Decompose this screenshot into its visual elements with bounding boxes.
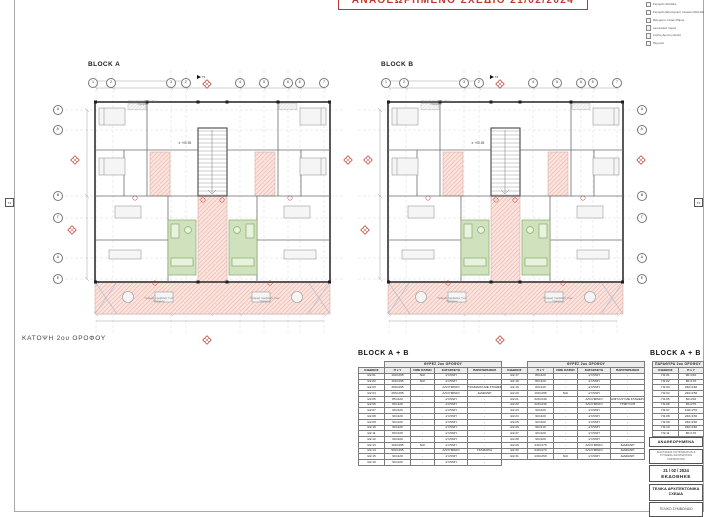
table-cell: 90×220 [385,460,411,466]
checkbox-icon[interactable] [646,41,651,46]
windows-table: ΠΑΡΑΘΥΡΑ 2ου ΟΡΟΦΟΥ ΚΩΔΙΚΟΣΠ x Y Π2.0190… [652,361,703,437]
checkbox-icon[interactable] [646,10,651,15]
projection-note: Γραμμή προβολής Των Ορόφων [124,100,162,107]
grid-bubble: 2' [181,78,191,88]
floor-plan-canvas [0,58,705,348]
table-cell: 80×170 [679,431,704,437]
grid-bubble: 2' [474,78,484,88]
table-row: Θ2.31130×250ΝΑΙΞΥΛΙΝΗΔΙΑΦΑΝΗ [502,454,645,460]
stamp-revision-note: ΔΙΑΣΤΑΣΕΙΣ ΚΟΥΦΩΜΑΤΩΝ & ΣΥΝΘΕΣΗ ΕΣΩΤΕΡΙΚ… [649,449,703,464]
drawing-sheet: { "sheet": { "revision_banner": "ΑΝΑΘΕΩΡ… [0,0,705,513]
projection-note: Γραμμή προβολής Των Ορόφων [539,297,577,304]
doors-table-left: ΘΥΡΕΣ 2ου ΟΡΟΦΟΥ ΚΩΔΙΚΟΣΠ x YFIRE RATEDΚ… [358,361,501,466]
grid-bubble: 2 [399,78,409,88]
legend-item[interactable]: Laminated παρκέ [646,25,704,30]
grid-bubble: 5 [259,78,269,88]
grid-bubble: 1 [381,78,391,88]
table-row: Θ2.1690×220-ΞΥΛΙΝΗ- [359,460,502,466]
legend-label: Ξύλινη Δρύινη (deck) [653,34,681,37]
projection-note: Γραμμή προβολής Των Ορόφων [246,297,284,304]
section-marker-t2: Τ2 [5,198,14,207]
grid-bubble: Β [53,191,63,201]
legend-item[interactable]: Ξύλινη Δρύινη (deck) [646,33,704,38]
projection-note: Γραμμή προβολής Των Ορόφων [140,297,178,304]
grid-bubble: 3 [166,78,176,88]
stamp-issued-label: ΕΚΔΟΘΗΚΕ [661,474,691,479]
grid-bubble: Α [53,105,63,115]
legend-label: Πέργολα [653,42,665,45]
grid-bubble: Β [637,191,647,201]
level-mark: ✛ +05.55 [178,141,191,145]
checkbox-icon[interactable] [646,25,651,30]
stamp-date: 21 / 02 / 2024 [663,468,689,473]
table-cell: 130×250 [528,454,554,460]
legend-label: Κεραμίδι 40x40εκ. [653,3,677,6]
grid-bubble: 4 [528,78,538,88]
grid-bubble: 5 [552,78,562,88]
doors-table-title: BLOCK A + B [358,350,409,357]
projection-note: Γραμμή προβολής Των Ορόφων [417,100,455,107]
section-flag-icon [490,75,494,79]
grid-bubble: 2 [106,78,116,88]
legend-label: Laminated παρκέ [653,27,676,30]
table-cell: ΞΥΛΙΝΗ [435,460,468,466]
table-cell: Θ2.16 [359,460,385,466]
checkbox-icon[interactable] [646,33,651,38]
stamp-issue: 21 / 02 / 2024 ΕΚΔΟΘΗΚΕ [649,465,703,482]
grid-bubble: Α' [53,125,63,135]
grid-bubble: Α [637,105,647,115]
table-cell: - [468,460,502,466]
table-cell: Π2.11 [653,431,679,437]
section-flag-icon [197,75,201,79]
legend-item[interactable]: Κεραμίδι 40x40εκ. [646,2,704,7]
legend-item[interactable]: Κεραμίδι (Εξωτερικό) πλακάκι 60x120εκ. [646,10,704,15]
revision-stamp: ΑΝΑΘΕΩΡΗΜΕΝΑ ΔΙΑΣΤΑΣΕΙΣ ΚΟΥΦΩΜΑΤΩΝ & ΣΥΝ… [649,437,703,517]
table-row: Π2.1180×170 [653,431,704,437]
grid-bubble: 7 [319,78,329,88]
checkbox-icon[interactable] [646,18,651,23]
grid-bubble: Δ [637,253,647,263]
legend-item[interactable]: Μάρμαρο πλακέ 25ψηλ. [646,18,704,23]
table-cell: Θ2.31 [502,454,528,460]
grid-bubble: 3 [459,78,469,88]
grid-bubble: 6' [295,78,305,88]
level-mark: ✛ +05.55 [471,141,484,145]
revision-banner: ΑΝΑΘΕΩΡΗΜΕΝΟ ΣΧΕΔΙΟ 21/02/2024 [338,0,588,10]
grid-bubble: 6' [588,78,598,88]
grid-bubble: Γ [637,213,647,223]
section-flag-t1: Τ1 [197,75,206,79]
legend-label: Κεραμίδι (Εξωτερικό) πλακάκι 60x120εκ. [653,11,704,14]
floor-plan-title: ΚΑΤΟΨΗ 2ου ΟΡΟΦΟΥ [22,335,106,342]
grid-bubble: 6 [283,78,293,88]
grid-bubble: 1 [88,78,98,88]
table-cell: ΞΥΛΙΝΗ [578,454,611,460]
doors-table-right: ΘΥΡΕΣ 2ου ΟΡΟΦΟΥ ΚΩΔΙΚΟΣΠ x YFIRE RATEDΚ… [501,361,644,460]
table-cell: ΝΑΙ [554,454,578,460]
grid-bubble: Ε [53,274,63,284]
section-flag-t1: Τ1 [490,75,499,79]
stamp-purpose: ΤΕΛΙΚΑ ΑΡΧΙΤΕΚΤΟΝΙΚΑ ΣΧΕΔΙΑ [649,484,703,501]
projection-note: Γραμμή προβολής Των Ορόφων [433,297,471,304]
grid-bubble: Γ [53,213,63,223]
grid-bubble: 7 [612,78,622,88]
legend-item[interactable]: Πέργολα [646,41,704,46]
grid-bubble: Ε [637,274,647,284]
grid-bubble: 4 [235,78,245,88]
table-cell: ΔΙΑΦΑΝΗ [611,454,645,460]
legend-label: Μάρμαρο πλακέ 25ψηλ. [653,19,685,22]
checkbox-icon[interactable] [646,2,651,7]
windows-table-title: BLOCK A + B [650,350,701,357]
section-marker-t2: Τ2 [694,198,703,207]
materials-legend: Κεραμίδι 40x40εκ.Κεραμίδι (Εξωτερικό) πλ… [646,2,704,49]
grid-bubble: Α' [637,125,647,135]
stamp-contract: ΤΕΛΙΚΟ ΣΥΜΒΟΛΑΙΟ [649,502,703,517]
table-cell: - [411,460,435,466]
grid-bubble: Δ [53,253,63,263]
stamp-revised-label: ΑΝΑΘΕΩΡΗΜΕΝΑ [649,437,703,447]
grid-bubble: 6 [576,78,586,88]
